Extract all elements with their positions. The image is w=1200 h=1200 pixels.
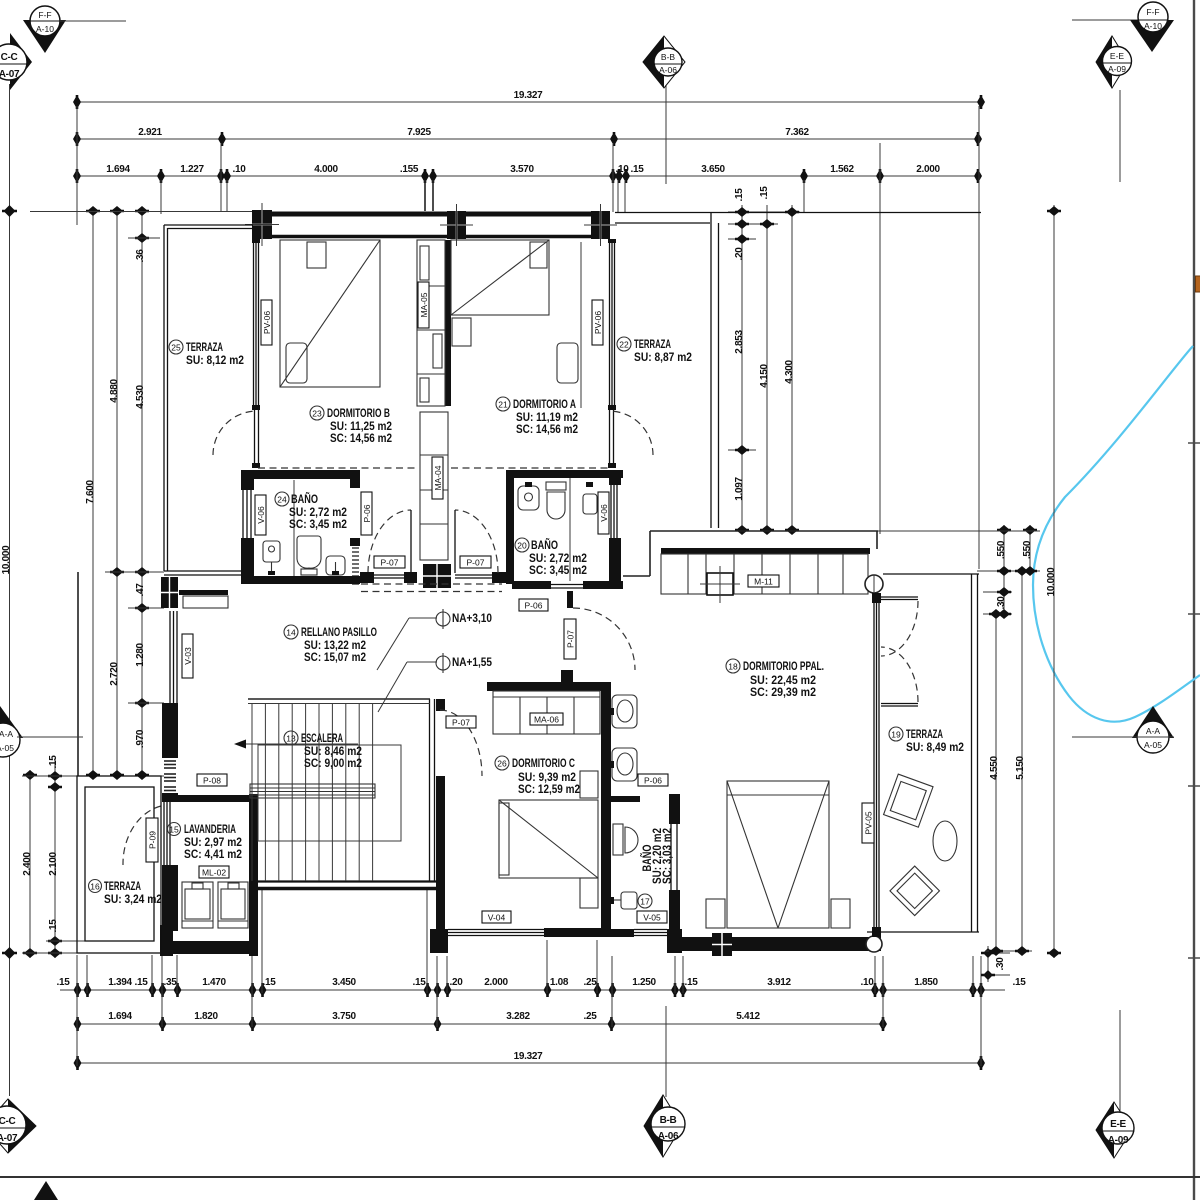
svg-text:.550: .550 <box>1022 540 1033 559</box>
svg-text:19.327: 19.327 <box>514 90 544 101</box>
svg-text:3.750: 3.750 <box>332 1011 356 1022</box>
svg-text:1.850: 1.850 <box>914 977 938 988</box>
svg-text:TERRAZA: TERRAZA <box>104 881 141 893</box>
svg-text:.15: .15 <box>684 977 698 988</box>
svg-text:2.853: 2.853 <box>734 330 745 354</box>
svg-text:V-03: V-03 <box>183 647 193 665</box>
svg-text:.25: .25 <box>583 1011 597 1022</box>
svg-text:E-E: E-E <box>1110 51 1125 61</box>
svg-text:A-05: A-05 <box>1144 740 1162 750</box>
svg-text:SU: 8,87 m2: SU: 8,87 m2 <box>634 352 692 364</box>
svg-text:19.327: 19.327 <box>514 1051 544 1062</box>
svg-text:1.097: 1.097 <box>734 477 745 501</box>
svg-text:3.450: 3.450 <box>332 977 356 988</box>
svg-text:SU: 8,49 m2: SU: 8,49 m2 <box>906 742 964 754</box>
svg-text:A-A: A-A <box>1146 726 1161 736</box>
svg-text:PV-06: PV-06 <box>262 311 272 334</box>
svg-text:.20: .20 <box>734 247 745 261</box>
svg-text:TERRAZA: TERRAZA <box>906 729 943 741</box>
svg-text:.15: .15 <box>734 188 745 202</box>
svg-text:SU: 9,39 m2: SU: 9,39 m2 <box>518 772 576 784</box>
svg-text:A-09: A-09 <box>1108 64 1126 74</box>
svg-text:SC: 3,45 m2: SC: 3,45 m2 <box>289 519 347 531</box>
svg-text:.155: .155 <box>400 164 419 175</box>
svg-text:.15: .15 <box>48 919 59 933</box>
svg-text:A-06: A-06 <box>658 1131 679 1142</box>
svg-text:.20: .20 <box>449 977 463 988</box>
svg-text:P-06: P-06 <box>362 504 372 522</box>
svg-text:21: 21 <box>498 400 508 410</box>
svg-text:A-07: A-07 <box>0 69 20 80</box>
svg-text:.15: .15 <box>759 186 770 200</box>
svg-text:1.250: 1.250 <box>632 977 656 988</box>
svg-text:3.282: 3.282 <box>506 1011 530 1022</box>
svg-text:19: 19 <box>891 730 901 740</box>
svg-text:A-06: A-06 <box>659 65 677 75</box>
svg-text:14: 14 <box>286 628 296 638</box>
svg-text:SU: 22,45 m2: SU: 22,45 m2 <box>750 675 816 687</box>
svg-text:2.000: 2.000 <box>916 164 940 175</box>
svg-text:SC: 9,00 m2: SC: 9,00 m2 <box>304 758 362 770</box>
svg-text:ESCALERA: ESCALERA <box>301 733 343 745</box>
svg-text:P-09: P-09 <box>148 831 158 849</box>
svg-text:NA+1,55: NA+1,55 <box>452 657 493 669</box>
svg-text:20: 20 <box>517 541 527 551</box>
svg-text:.25: .25 <box>583 977 597 988</box>
svg-text:TERRAZA: TERRAZA <box>186 342 223 354</box>
svg-text:.550: .550 <box>996 540 1007 559</box>
svg-text:DORMITORIO PPAL.: DORMITORIO PPAL. <box>743 661 824 673</box>
svg-text:ML-02: ML-02 <box>202 868 226 878</box>
svg-text:.35: .35 <box>163 977 177 988</box>
svg-text:4.300: 4.300 <box>784 360 795 384</box>
svg-text:.36: .36 <box>135 249 146 263</box>
svg-text:BAÑO: BAÑO <box>291 493 318 506</box>
svg-text:.15: .15 <box>134 977 148 988</box>
svg-text:.15: .15 <box>48 755 59 769</box>
svg-text:RELLANO PASILLO: RELLANO PASILLO <box>301 627 377 639</box>
svg-text:7.600: 7.600 <box>85 480 96 504</box>
svg-text:1.394: 1.394 <box>108 977 132 988</box>
svg-text:.15: .15 <box>56 977 70 988</box>
svg-text:PV-05: PV-05 <box>864 811 874 834</box>
svg-text:V-06: V-06 <box>599 504 609 522</box>
svg-text:F-F: F-F <box>1146 7 1159 17</box>
svg-text:V-05: V-05 <box>643 913 661 923</box>
svg-text:4.880: 4.880 <box>109 379 120 403</box>
svg-text:.10: .10 <box>860 977 874 988</box>
svg-text:SC: 29,39 m2: SC: 29,39 m2 <box>750 687 816 699</box>
svg-text:BAÑO: BAÑO <box>531 539 558 552</box>
svg-text:24: 24 <box>277 495 287 505</box>
svg-text:DORMITORIO A: DORMITORIO A <box>513 399 576 411</box>
svg-text:7.925: 7.925 <box>407 127 431 138</box>
svg-text:.47: .47 <box>135 583 146 597</box>
svg-text:A-A: A-A <box>0 729 13 739</box>
svg-text:4.000: 4.000 <box>314 164 338 175</box>
svg-text:18: 18 <box>728 662 738 672</box>
svg-text:22: 22 <box>619 340 629 350</box>
svg-text:26: 26 <box>497 759 507 769</box>
svg-text:1.694: 1.694 <box>106 164 130 175</box>
svg-text:SU: 8,12 m2: SU: 8,12 m2 <box>186 355 244 367</box>
svg-text:.15: .15 <box>630 164 644 175</box>
svg-text:15: 15 <box>169 825 179 835</box>
svg-text:3.650: 3.650 <box>701 164 725 175</box>
svg-text:DORMITORIO C: DORMITORIO C <box>512 758 575 770</box>
svg-text:2.000: 2.000 <box>484 977 508 988</box>
svg-text:C-C: C-C <box>1 52 18 63</box>
svg-text:.15: .15 <box>1012 977 1026 988</box>
svg-text:1.227: 1.227 <box>180 164 204 175</box>
svg-text:13: 13 <box>286 734 296 744</box>
svg-text:10.000: 10.000 <box>1046 567 1057 597</box>
svg-text:E-E: E-E <box>1110 1119 1126 1130</box>
svg-text:10.000: 10.000 <box>1 545 12 575</box>
svg-text:P-07: P-07 <box>452 718 470 728</box>
svg-text:P-07: P-07 <box>381 558 399 568</box>
svg-text:SU: 13,22 m2: SU: 13,22 m2 <box>304 640 366 652</box>
svg-text:5.150: 5.150 <box>1015 756 1026 780</box>
svg-text:V-06: V-06 <box>256 506 266 524</box>
svg-text:P-06: P-06 <box>644 776 662 786</box>
svg-text:SC: 4,41 m2: SC: 4,41 m2 <box>184 849 242 861</box>
svg-text:SU: 3,24 m2: SU: 3,24 m2 <box>104 894 162 906</box>
svg-text:A-05: A-05 <box>0 743 14 753</box>
svg-text:17: 17 <box>640 897 650 907</box>
svg-text:LAVANDERIA: LAVANDERIA <box>184 824 236 836</box>
svg-text:MA-06: MA-06 <box>534 715 559 725</box>
svg-text:7.362: 7.362 <box>785 127 809 138</box>
svg-text:.15: .15 <box>262 977 276 988</box>
svg-text:5.412: 5.412 <box>736 1011 760 1022</box>
svg-text:.10: .10 <box>615 164 629 175</box>
svg-text:3.912: 3.912 <box>767 977 791 988</box>
svg-text:2.100: 2.100 <box>48 852 59 876</box>
svg-text:A-09: A-09 <box>1108 1135 1129 1146</box>
svg-text:A-10: A-10 <box>1144 21 1162 31</box>
svg-text:.30: .30 <box>996 596 1007 610</box>
svg-text:F-F: F-F <box>38 10 51 20</box>
svg-text:P-07: P-07 <box>566 630 576 648</box>
svg-text:A-07: A-07 <box>0 1133 18 1144</box>
svg-text:SC: 14,56 m2: SC: 14,56 m2 <box>330 433 392 445</box>
svg-text:SU: 2,97 m2: SU: 2,97 m2 <box>184 837 242 849</box>
svg-text:.15: .15 <box>412 977 426 988</box>
svg-text:SC: 3,03 m2: SC: 3,03 m2 <box>662 828 674 884</box>
svg-text:SC: 12,59 m2: SC: 12,59 m2 <box>518 784 580 796</box>
svg-text:P-06: P-06 <box>525 601 543 611</box>
svg-text:V-04: V-04 <box>488 913 506 923</box>
svg-text:16: 16 <box>90 882 100 892</box>
svg-text:3.570: 3.570 <box>510 164 534 175</box>
svg-text:B-B: B-B <box>660 1115 677 1126</box>
svg-text:1.280: 1.280 <box>135 643 146 667</box>
svg-text:M-11: M-11 <box>754 577 773 587</box>
svg-text:2.720: 2.720 <box>109 662 120 686</box>
svg-text:DORMITORIO B: DORMITORIO B <box>327 408 390 420</box>
svg-text:23: 23 <box>312 409 322 419</box>
svg-text:.10: .10 <box>232 164 246 175</box>
svg-text:4.550: 4.550 <box>989 756 1000 780</box>
svg-text:P-07: P-07 <box>467 558 485 568</box>
svg-text:SU: 8,46 m2: SU: 8,46 m2 <box>304 746 362 758</box>
svg-text:1.470: 1.470 <box>202 977 226 988</box>
svg-text:PV-06: PV-06 <box>593 311 603 334</box>
svg-text:1.562: 1.562 <box>830 164 854 175</box>
svg-text:2.400: 2.400 <box>22 852 33 876</box>
svg-text:1.694: 1.694 <box>108 1011 132 1022</box>
svg-text:SC: 15,07 m2: SC: 15,07 m2 <box>304 652 366 664</box>
svg-text:4.530: 4.530 <box>135 385 146 409</box>
svg-text:2.921: 2.921 <box>138 127 162 138</box>
svg-text:.970: .970 <box>135 729 146 748</box>
svg-text:B-B: B-B <box>661 52 676 62</box>
svg-text:25: 25 <box>171 343 181 353</box>
svg-text:.30: .30 <box>995 957 1006 971</box>
svg-text:MA-04: MA-04 <box>433 465 443 490</box>
svg-text:SC: 14,56 m2: SC: 14,56 m2 <box>516 424 578 436</box>
svg-text:SU: 2,72 m2: SU: 2,72 m2 <box>529 553 587 565</box>
svg-text:P-08: P-08 <box>203 776 221 786</box>
svg-text:A-10: A-10 <box>36 24 54 34</box>
svg-text:4.150: 4.150 <box>759 364 770 388</box>
svg-text:1.820: 1.820 <box>194 1011 218 1022</box>
svg-text:1.08: 1.08 <box>550 977 569 988</box>
svg-text:SU: 11,19 m2: SU: 11,19 m2 <box>516 412 578 424</box>
svg-text:TERRAZA: TERRAZA <box>634 339 671 351</box>
svg-text:MA-05: MA-05 <box>419 292 429 317</box>
svg-text:SU: 11,25 m2: SU: 11,25 m2 <box>330 421 392 433</box>
svg-text:SC: 3,45 m2: SC: 3,45 m2 <box>529 565 587 577</box>
svg-text:C-C: C-C <box>0 1116 16 1127</box>
svg-text:NA+3,10: NA+3,10 <box>452 613 492 625</box>
svg-text:SU: 2,72 m2: SU: 2,72 m2 <box>289 507 347 519</box>
